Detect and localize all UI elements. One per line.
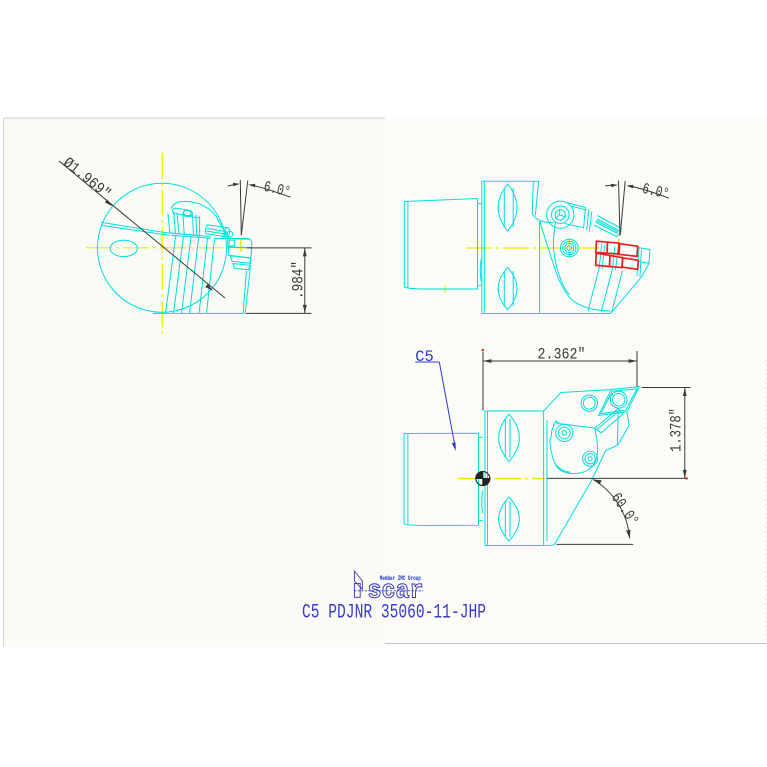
svg-text:2.362": 2.362" (538, 345, 586, 363)
svg-text:C5: C5 (415, 348, 434, 366)
svg-text:.984": .984" (289, 261, 307, 299)
svg-text:Member IMC Group: Member IMC Group (380, 575, 421, 582)
svg-text:1.378": 1.378" (668, 408, 686, 452)
svg-text:C5 PDJNR 35060-11-JHP: C5 PDJNR 35060-11-JHP (302, 602, 486, 625)
